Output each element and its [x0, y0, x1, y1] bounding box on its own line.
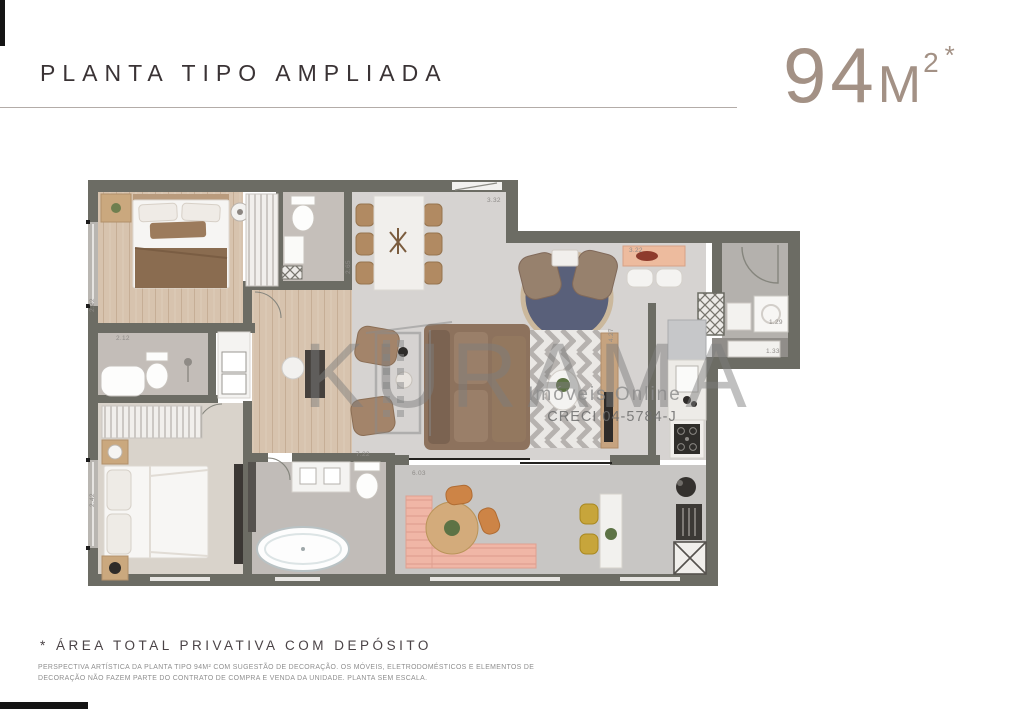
bath-shelf-icon [284, 236, 304, 264]
wardrobe-icon [246, 194, 278, 286]
dining-chair-icon [356, 262, 374, 284]
bathtub-small-icon [101, 366, 145, 396]
gourmet-sink-icon [676, 477, 696, 497]
tv-panel-icon [234, 464, 243, 564]
page: PLANTA TIPO AMPLIADA 94M2* [0, 0, 1024, 709]
wall-bath3-top-a [252, 453, 268, 462]
watermark-tagline: Imóveis Online [528, 384, 682, 405]
toilet-icon [292, 205, 314, 231]
toilet-tank-icon [354, 462, 380, 471]
bottom-left-accent-bar [0, 702, 88, 709]
pillow-icon [182, 203, 221, 222]
wall-bath3-right [386, 453, 395, 576]
floor-plan-svg: 3.322.653.221.291.334.277.226.032.822.12… [0, 0, 1024, 709]
wall-living-top [506, 231, 800, 243]
measurement-label: 2.42 [89, 493, 96, 507]
lamp-icon [109, 562, 121, 574]
sink-icon [300, 468, 316, 484]
closet-icon [102, 406, 202, 438]
toilet-tank-icon [291, 196, 315, 205]
lamp-center-icon [237, 209, 243, 215]
toilet-icon [146, 363, 168, 389]
headboard-icon [133, 194, 229, 200]
pillow-icon [107, 470, 131, 510]
dining-furniture [356, 196, 442, 290]
cushion-icon [150, 221, 207, 239]
pillow-icon [139, 203, 178, 222]
window-sill-3 [620, 577, 680, 581]
shower-partition-icon [248, 462, 256, 532]
dining-chair-icon [424, 262, 442, 284]
window-sill-2 [275, 577, 320, 581]
measurement-label: 7.22 [356, 451, 370, 458]
dining-chair-icon [424, 233, 442, 255]
disclaimer: PERSPECTIVA ARTÍSTICA DA PLANTA TIPO 94M… [38, 662, 534, 684]
dining-chair-icon [424, 204, 442, 226]
plant-icon [111, 203, 121, 213]
balcony-glass-rail [430, 577, 560, 581]
measurement-label: 6.03 [412, 470, 426, 477]
wall-deposito-left [712, 243, 722, 295]
desk-chair-icon [282, 357, 304, 379]
area-note: * ÁREA TOTAL PRIVATIVA COM DEPÓSITO [40, 638, 432, 653]
window-sill-1 [150, 577, 210, 581]
dim-tick-4 [86, 546, 90, 550]
measurement-label: 1.33 [766, 348, 780, 355]
watermark-brand: KURAMA [303, 325, 757, 427]
wall-bedroom1-right [243, 281, 252, 331]
wall-deposito-right [788, 231, 800, 369]
stool-yellow-icon [580, 534, 598, 554]
disclaimer-line-2: DECORAÇÃO NÃO FAZEM PARTE DO CONTRATO DE… [38, 673, 534, 684]
dim-tick-3 [86, 458, 90, 462]
measurement-label: 3.32 [487, 197, 501, 204]
dining-chair-icon [356, 204, 374, 226]
measurement-label: 2.65 [345, 260, 352, 274]
pillow-icon [107, 514, 131, 554]
watermark: KURAMA Imóveis Online CRECI 04-5784-J [303, 322, 757, 436]
measurement-label: 3.22 [629, 247, 643, 254]
pouf-icon [627, 269, 653, 287]
toilet-icon [356, 473, 378, 499]
wall-balcony-stub-left [395, 455, 409, 465]
wall-bath3-top-b [292, 453, 395, 462]
disclaimer-line-1: PERSPECTIVA ARTÍSTICA DA PLANTA TIPO 94M… [38, 662, 534, 673]
measurement-label: 2.12 [116, 335, 130, 342]
pouf-icon [656, 269, 682, 287]
dim-tick-1 [86, 220, 90, 224]
side-tray-icon [552, 250, 578, 266]
measurement-label: 1.29 [769, 319, 783, 326]
plant-icon [605, 528, 617, 540]
measurement-label: 2.82 [89, 298, 96, 312]
wall-bath1-right [344, 190, 352, 290]
washer-icon [754, 296, 788, 332]
sink-icon [324, 468, 340, 484]
appliance-icon [222, 374, 246, 394]
plant-icon [444, 520, 460, 536]
wall-bath2-right [208, 333, 216, 400]
appliance-icon [222, 352, 246, 372]
lamp-icon [108, 445, 122, 459]
shower-head-icon [184, 358, 192, 366]
toilet-tank-icon [146, 352, 168, 361]
watermark-license: CRECI 04-5784-J [547, 409, 676, 425]
dining-chair-icon [356, 233, 374, 255]
stool-yellow-icon [580, 504, 598, 524]
shower-hatch-icon [282, 266, 302, 279]
